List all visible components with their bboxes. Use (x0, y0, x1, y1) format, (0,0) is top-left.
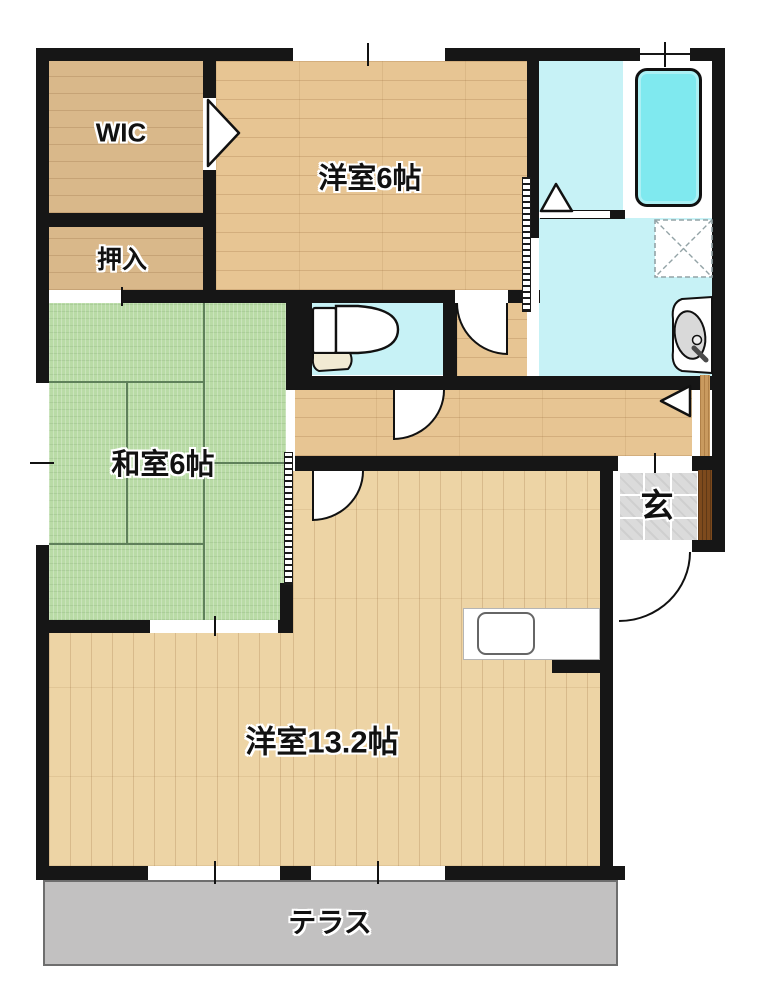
door-arc-front (619, 552, 691, 622)
window-top-west (293, 48, 445, 61)
bathtub (635, 68, 702, 207)
washroom-floor (538, 218, 712, 378)
hallway-floor (293, 390, 692, 456)
wall-toilet-left (286, 290, 312, 390)
wall-closet-divider (43, 213, 203, 227)
window-tick (214, 616, 216, 636)
wall-kitchen-stub (552, 660, 613, 673)
label-oshiire: 押入 (97, 240, 147, 276)
wall-right (712, 48, 725, 552)
window-tick (367, 43, 369, 66)
folding-door-lobby (522, 177, 531, 312)
folding-door-tatami (284, 452, 293, 585)
shoe-cabinet (698, 470, 712, 540)
opening-oshiire (49, 290, 122, 303)
bathroom-floor (538, 61, 625, 212)
window-tick (654, 453, 656, 473)
hall-cabinet (700, 375, 710, 456)
label-western6: 洋室6帖 (318, 155, 421, 197)
window-tick (121, 287, 123, 306)
floor-plan: WIC 押入 洋室6帖 和室6帖 洋室13.2帖 玄 テラス (0, 0, 757, 1000)
window-tick (664, 42, 666, 67)
tatami-seam (49, 543, 203, 545)
wall-toilet-bottom (286, 376, 725, 390)
label-living: 洋室13.2帖 (245, 717, 398, 762)
doorway-wic (203, 98, 216, 170)
wall-tatami-right (280, 583, 293, 633)
wall-entrance-stub (692, 540, 720, 552)
window-left-japanese (36, 383, 49, 545)
window-tick (377, 861, 379, 884)
bath-threshold (540, 210, 610, 219)
doorway-western6 (455, 290, 508, 303)
label-terrace: テラス (288, 901, 371, 941)
window-tick (30, 462, 54, 464)
label-wic: WIC (96, 118, 147, 149)
wall-bath-stub (610, 210, 625, 219)
window-tick (214, 861, 216, 884)
label-japanese6: 和室6帖 (111, 441, 214, 483)
label-entrance: 玄 (641, 479, 674, 527)
tatami-seam (205, 462, 286, 464)
kitchen-sink (477, 612, 535, 655)
toilet-floor (312, 303, 443, 375)
wall-toilet-right (443, 290, 457, 388)
opening-tatami-east (286, 390, 295, 456)
